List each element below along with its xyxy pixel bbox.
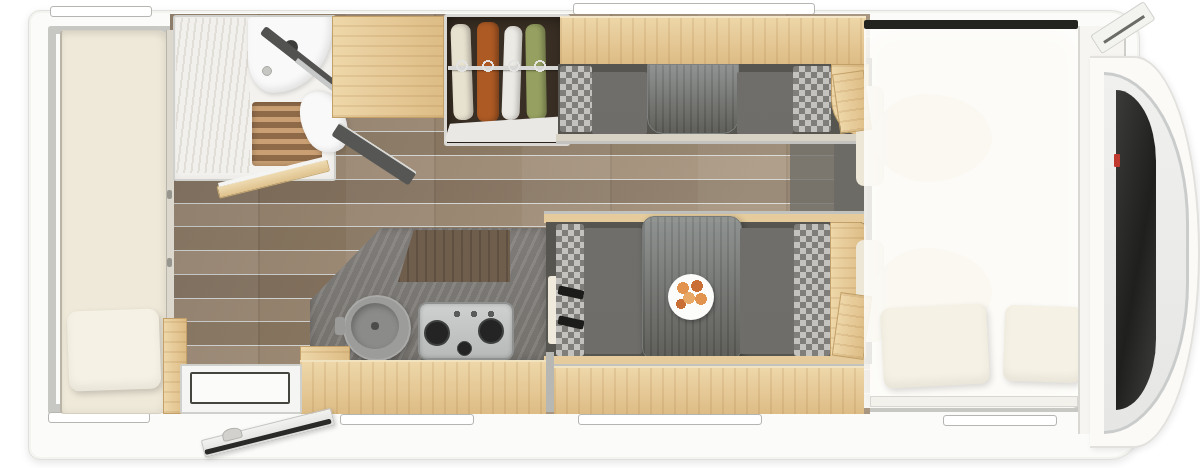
band-divider xyxy=(546,352,554,412)
overcab-bed-bottom-frame xyxy=(870,396,1078,407)
top-bench-seat-right xyxy=(737,72,793,134)
kitchen-counter-walnut-section xyxy=(398,230,510,282)
shower-blind xyxy=(176,18,250,173)
overhead-locker xyxy=(560,16,866,68)
wardrobe-hanger-hooks xyxy=(452,58,548,74)
top-bench-check-right xyxy=(793,66,831,132)
top-bench-check-left xyxy=(560,66,592,132)
window-bottom-dinette xyxy=(578,414,762,425)
entrance-step-inner xyxy=(190,372,290,404)
dinette-seat-left xyxy=(584,228,642,354)
top-bench-backrest-panel xyxy=(647,64,739,134)
window-top-rear xyxy=(50,6,152,17)
cabinet-tower xyxy=(332,16,444,118)
dinette-front-band xyxy=(554,366,864,414)
cab-door-line xyxy=(943,415,1057,426)
overcab-pillow-right xyxy=(1003,305,1084,384)
fruit-cluster xyxy=(674,280,708,314)
basin-drain-dot xyxy=(262,66,272,76)
dinette-check-right xyxy=(794,224,830,356)
partition-hinge-upper xyxy=(167,190,172,199)
rear-bed-pillow xyxy=(67,308,162,391)
top-bench-frame-metal xyxy=(556,141,868,144)
kitchen-sink-tap xyxy=(335,317,345,335)
kitchen-front-band xyxy=(300,360,546,414)
hob-burner-left xyxy=(424,320,450,346)
windshield-glass xyxy=(1116,90,1156,410)
overcab-bed-top-bar xyxy=(864,20,1078,29)
kitchen-sink-drain xyxy=(371,322,379,330)
partition-hinge-lower xyxy=(167,258,172,267)
window-bottom-kitchen xyxy=(340,414,474,425)
top-bench-seat-left xyxy=(592,72,647,134)
hob-burner-right xyxy=(478,318,504,344)
motorhome-floorplan xyxy=(0,0,1200,468)
overcab-pillow-left xyxy=(880,303,990,388)
rear-wall xyxy=(48,26,56,414)
hob-burner-small xyxy=(457,341,472,356)
dinette-seat-right xyxy=(740,228,794,354)
brand-logo-mark xyxy=(1114,154,1120,167)
